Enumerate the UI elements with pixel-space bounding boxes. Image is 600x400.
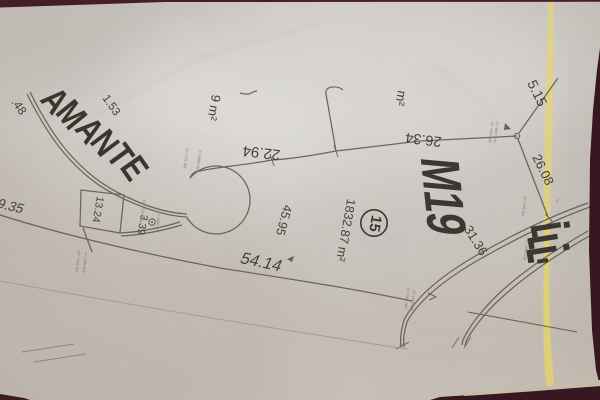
svg-text:15: 15 — [365, 214, 385, 233]
svg-text:M19: M19 — [408, 156, 477, 238]
